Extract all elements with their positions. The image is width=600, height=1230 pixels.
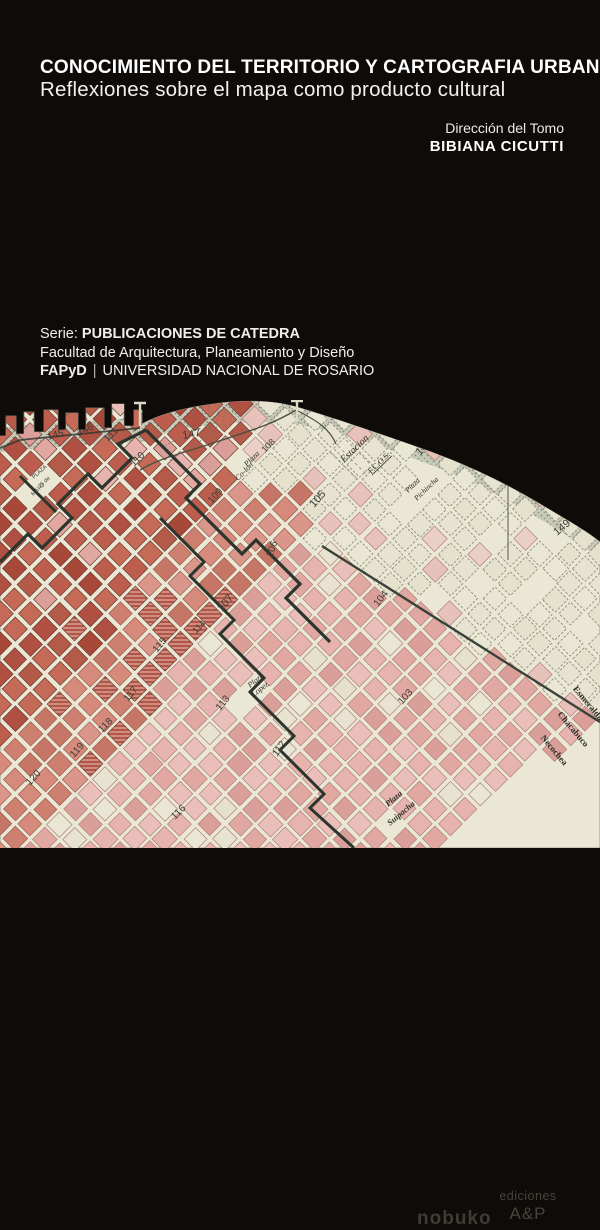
institution-name: UNIVERSIDAD NACIONAL DE ROSARIO [103, 363, 375, 379]
institution-separator: | [87, 363, 103, 379]
direction-block: Dirección del Tomo BIBIANA CICUTTI [430, 120, 564, 155]
historic-map-image: 145146147148149111110109108PlazaCo-lonPL… [0, 400, 600, 848]
faculty-name: Facultad de Arquitectura, Planeamiento y… [40, 344, 374, 363]
series-prefix: Serie: [40, 326, 78, 342]
historic-map-svg: 145146147148149111110109108PlazaCo-lonPL… [0, 400, 600, 848]
series-name: PUBLICACIONES DE CATEDRA [82, 326, 300, 342]
book-title: CONOCIMIENTO DEL TERRITORIO Y CARTOGRAFI… [40, 57, 600, 79]
publisher-logo-nobuko: nobuko [417, 1208, 492, 1230]
publisher-imprint-ayp: ediciones A&P [488, 1189, 568, 1224]
imprint-ediciones: ediciones [488, 1189, 568, 1203]
imprint-ayp-logo: A&P [488, 1204, 568, 1224]
direction-label: Dirección del Tomo [430, 120, 564, 136]
book-subtitle: Reflexiones sobre el mapa como producto … [40, 78, 505, 102]
author-name: BIBIANA CICUTTI [430, 138, 564, 155]
institution-line: FAPyD|UNIVERSIDAD NACIONAL DE ROSARIO [40, 362, 374, 381]
institution-abbr: FAPyD [40, 363, 87, 379]
series-line: Serie: PUBLICACIONES DE CATEDRA [40, 325, 374, 344]
series-block: Serie: PUBLICACIONES DE CATEDRA Facultad… [40, 325, 374, 381]
